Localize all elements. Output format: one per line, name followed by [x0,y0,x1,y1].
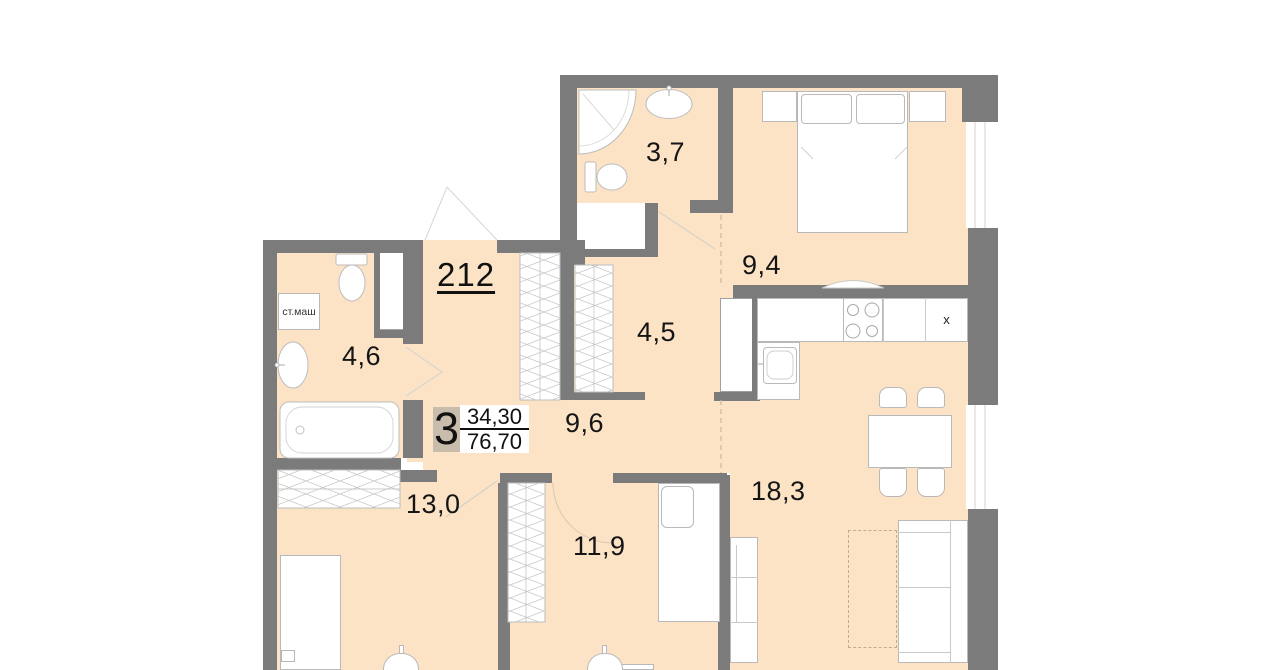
room-label-bedroom-left: 13,0 [406,489,461,520]
floor-plan: ст.маш x [0,0,1280,670]
wall-segment [374,330,405,338]
wall-segment [263,240,423,253]
counter-divider [883,298,884,342]
shelf-line [730,577,758,578]
room-label-kitchen-living: 18,3 [751,476,806,507]
bathroom-top-door-floor [658,198,692,216]
kitchen-unit-x: x [925,298,968,342]
room-label-hallway: 4,5 [637,317,676,348]
wall-segment [374,252,380,336]
living-area: 34,30 [460,405,529,430]
entrance-door-swing [425,187,497,240]
bathroom-left-door-floor [403,344,425,402]
wall-segment [572,392,645,400]
wall-segment [263,240,277,670]
kitchen-sink [763,347,797,384]
pillow [801,94,852,124]
shelf-line [730,622,758,623]
wall-segment [690,200,733,213]
wall-segment [263,458,400,470]
sofa-line [898,652,950,653]
window-kitchen [966,405,998,509]
kitchen-duct-shaft [720,298,753,392]
wall-segment [403,240,423,344]
chair [879,387,907,408]
carpet-dashed-zone [848,530,897,648]
wall-segment [718,88,733,213]
duct-shaft [577,203,645,249]
chair [879,468,907,497]
wall-segment [613,473,727,483]
total-area: 76,70 [460,430,529,454]
chair-back [602,645,607,654]
window-bedroom-top [966,122,998,228]
chair [917,468,945,497]
stove [843,298,883,342]
shelving-unit [730,537,758,663]
wall-segment [560,75,998,88]
rooms-count-badge: 3 [433,407,460,452]
wall-segment [733,285,968,298]
pillow [661,486,694,528]
chair [917,387,945,408]
bed-corner-detail [281,650,295,662]
wall-segment [400,470,437,482]
washing-machine-label: ст.маш [282,306,315,318]
washing-machine: ст.маш [278,293,320,330]
dining-table [868,415,952,468]
shelf-line [736,545,737,622]
wall-segment [403,400,423,458]
area-fraction: 34,30 76,70 [460,405,529,453]
wall-niche [379,252,404,330]
sofa-line [898,532,950,533]
nightstand [762,91,797,122]
wall-segment [560,240,585,265]
room-label-bathroom-left: 4,6 [342,341,381,372]
nightstand [909,91,946,122]
wall-segment [500,473,552,483]
sofa-line [950,520,951,663]
pillow [856,94,905,124]
sofa-line [898,587,950,588]
room-label-bedroom-top: 9,4 [742,250,781,281]
room-label-bathroom-top: 3,7 [646,137,685,168]
sofa [898,520,968,663]
apartment-number: 212 [437,256,495,294]
room-label-bedroom-middle: 11,9 [573,531,626,562]
chair-back [399,645,404,654]
wall-segment [498,483,510,670]
wall-segment [714,392,760,401]
room-label-corridor: 9,6 [565,408,604,439]
